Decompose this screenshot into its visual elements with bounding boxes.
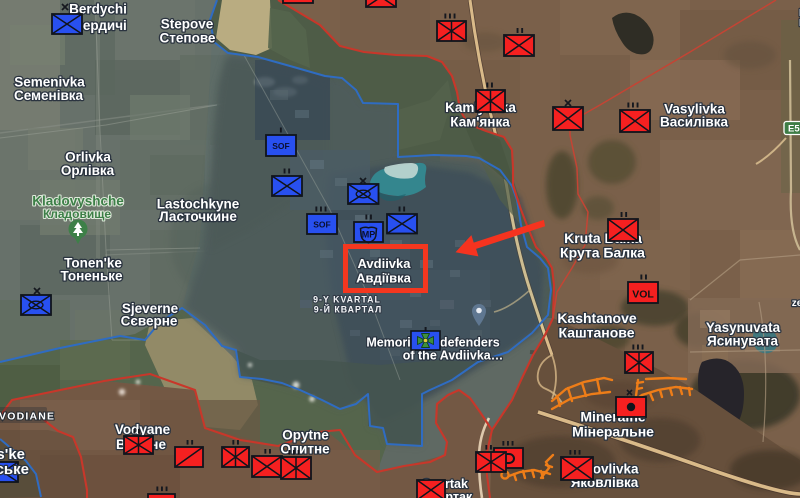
svg-text:Opytne: Opytne xyxy=(282,428,329,443)
svg-text:VODIANE: VODIANE xyxy=(0,411,55,423)
svg-text:Семенівка: Семенівка xyxy=(14,88,84,103)
svg-text:9-Й КВАРТАЛ: 9-Й КВАРТАЛ xyxy=(314,304,382,315)
svg-text:E50: E50 xyxy=(788,124,800,135)
svg-text:Каштанове: Каштанове xyxy=(558,325,634,341)
svg-text:MP: MP xyxy=(362,230,376,240)
svg-text:Василівка: Василівка xyxy=(660,115,728,130)
svg-text:Ласточкине: Ласточкине xyxy=(159,209,237,224)
svg-text:Ясинувата: Ясинувата xyxy=(707,334,778,349)
svg-text:Stepove: Stepove xyxy=(161,17,214,32)
svg-text:Опитне: Опитне xyxy=(280,442,330,457)
svg-text:VOL: VOL xyxy=(632,289,654,301)
svg-text:Кам'янка: Кам'янка xyxy=(450,115,510,130)
svg-text:SOF: SOF xyxy=(272,141,289,151)
svg-text:Сєверне: Сєверне xyxy=(121,314,178,329)
svg-text:9-Y KVARTAL: 9-Y KVARTAL xyxy=(313,295,381,305)
svg-text:Крута Балка: Крута Балка xyxy=(560,245,645,261)
svg-text:Кладовище: Кладовище xyxy=(43,207,111,221)
svg-text:Vodyane: Vodyane xyxy=(115,422,171,437)
svg-text:ське: ське xyxy=(0,461,29,478)
svg-text:Avdiivka: Avdiivka xyxy=(358,256,412,271)
svg-text:Мінеральне: Мінеральне xyxy=(572,424,654,440)
svg-text:Тоненьке: Тоненьке xyxy=(60,269,123,284)
svg-text:SOF: SOF xyxy=(313,220,330,230)
svg-text:zе: zе xyxy=(792,298,800,309)
svg-text:Орлівка: Орлівка xyxy=(61,163,115,178)
svg-text:Авдіївка: Авдіївка xyxy=(356,271,411,286)
svg-text:Степове: Степове xyxy=(160,31,216,46)
